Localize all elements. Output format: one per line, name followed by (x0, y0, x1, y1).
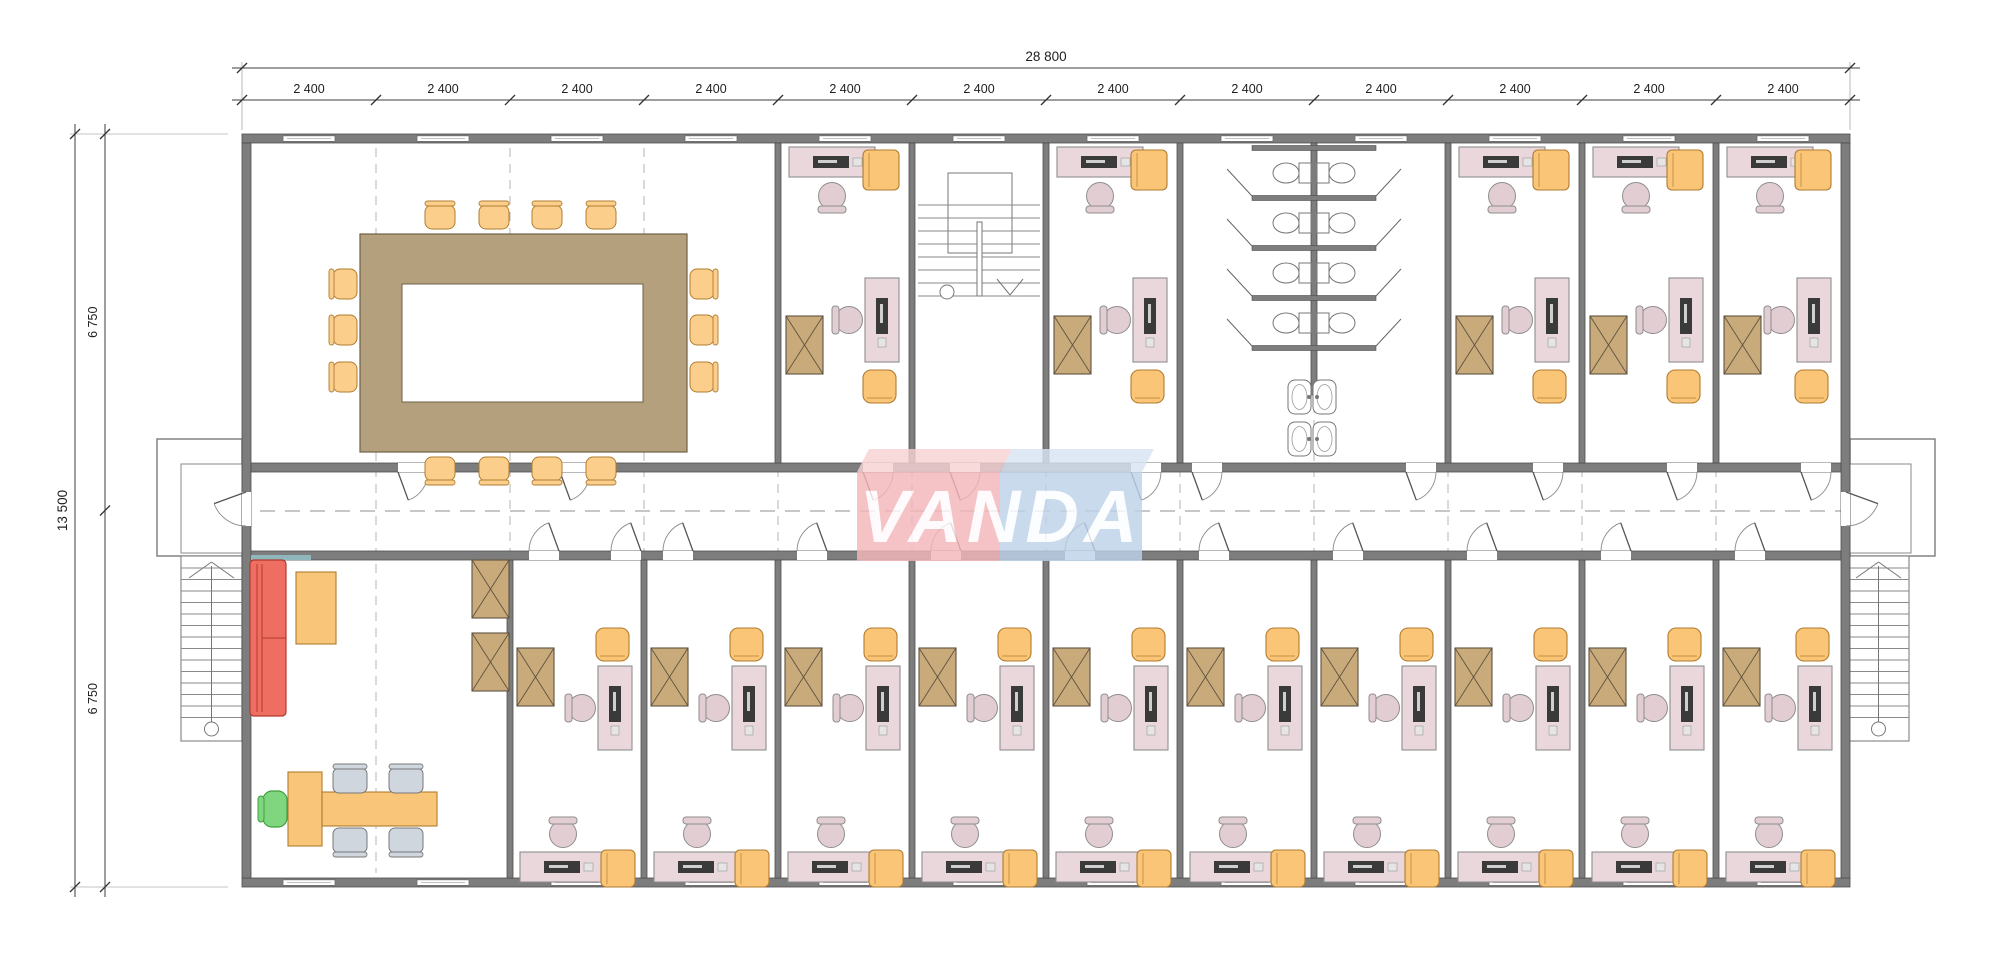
door-opening (1192, 463, 1222, 472)
cabinet-yellow (863, 150, 899, 190)
desk (1324, 852, 1410, 882)
desk (1268, 666, 1302, 750)
wardrobe-cabinet (1456, 316, 1493, 374)
task-chair (1755, 817, 1783, 848)
dimension-module: 2 400 (695, 82, 726, 96)
logo-text: VANDA (860, 475, 1143, 558)
door-opening (797, 551, 827, 560)
door-opening (1841, 492, 1850, 526)
desk (1726, 852, 1812, 882)
wardrobe-cabinet (1590, 316, 1627, 374)
door-opening (611, 551, 641, 560)
desk (788, 852, 874, 882)
meeting-chair (532, 457, 562, 485)
desk (866, 666, 900, 750)
dimension-module: 2 400 (1499, 82, 1530, 96)
left-vestibule-inner (181, 464, 242, 553)
logo-block-right-top (1000, 449, 1154, 472)
side-chair (1796, 628, 1829, 661)
stall-partition (1252, 296, 1376, 301)
meeting-chair (690, 315, 718, 345)
dimension-module: 2 400 (963, 82, 994, 96)
meeting-chair (479, 457, 509, 485)
cabinet-yellow (1673, 850, 1707, 887)
stall-partition (1252, 246, 1376, 251)
side-chair (1667, 370, 1700, 403)
task-chair (1503, 694, 1534, 722)
task-chair (817, 817, 845, 848)
door-opening (1735, 551, 1765, 560)
executive-desk (288, 772, 322, 846)
desk (1535, 278, 1569, 362)
partition-wall-bottom-row (1311, 560, 1317, 878)
dimension-module: 2 400 (561, 82, 592, 96)
wardrobe-cabinet (1187, 648, 1224, 706)
toilet-tank (1317, 163, 1329, 183)
meeting-chair (690, 269, 718, 299)
toilet-bowl (1273, 313, 1299, 333)
toilet-bowl (1329, 163, 1355, 183)
toilet-tank (1317, 263, 1329, 283)
desk (1536, 666, 1570, 750)
cabinet-yellow (1801, 850, 1835, 887)
side-chair (596, 628, 629, 661)
guest-chair (389, 828, 423, 857)
door-opening (1801, 463, 1831, 472)
dimension-total-height: 13 500 (55, 490, 70, 531)
door-opening (529, 551, 559, 560)
desk (1593, 147, 1679, 177)
cabinet-yellow (1533, 150, 1569, 190)
task-chair (1219, 817, 1247, 848)
desk (922, 852, 1008, 882)
wardrobe-cabinet (1053, 648, 1090, 706)
cabinet-yellow (1405, 850, 1439, 887)
task-chair (1353, 817, 1381, 848)
desk (1669, 278, 1703, 362)
task-chair (1487, 817, 1515, 848)
side-chair (864, 628, 897, 661)
side-chair (730, 628, 763, 661)
guest-chair (333, 828, 367, 857)
door-opening (1667, 463, 1697, 472)
task-chair (1235, 694, 1266, 722)
partition-wall-top-row (1713, 143, 1719, 463)
side-chair (998, 628, 1031, 661)
task-chair (1488, 183, 1516, 214)
desk (865, 278, 899, 362)
task-chair (1100, 306, 1131, 334)
dimension-module: 2 400 (1231, 82, 1262, 96)
guest-chair (333, 764, 367, 793)
right-external-stair (1848, 556, 1909, 741)
toilet-tank (1299, 213, 1311, 233)
door-opening (398, 463, 428, 472)
dimension-module: 2 400 (427, 82, 458, 96)
wardrobe-cabinet (651, 648, 688, 706)
meeting-chair (329, 269, 357, 299)
meeting-chair (586, 201, 616, 229)
task-chair (683, 817, 711, 848)
meeting-chair (329, 362, 357, 392)
meeting-chair (425, 457, 455, 485)
task-chair (1756, 183, 1784, 214)
partition-wall-bottom-row (1713, 560, 1719, 878)
task-chair (833, 694, 864, 722)
partition-wall-bottom-row (1043, 560, 1049, 878)
wardrobe-cabinet (1054, 316, 1091, 374)
task-chair (832, 306, 863, 334)
meeting-chair (586, 457, 616, 485)
partition-wall-top-row (1043, 143, 1049, 463)
side-chair (1533, 370, 1566, 403)
accent-wall-strip (251, 555, 311, 560)
partition-wall-bottom-row (1177, 560, 1183, 878)
right-vestibule-inner (1850, 464, 1911, 553)
dimension-half-height: 6 750 (86, 683, 100, 714)
door-opening (1601, 551, 1631, 560)
left-external-stair (181, 556, 242, 741)
side-chair (1400, 628, 1433, 661)
task-chair (967, 694, 998, 722)
cabinet-yellow (1271, 850, 1305, 887)
wardrobe-cabinet (785, 648, 822, 706)
door-opening (663, 551, 693, 560)
partition-wall-top-row (1177, 143, 1183, 463)
task-chair (565, 694, 596, 722)
toilet-tank (1299, 263, 1311, 283)
floor-plan-canvas: 28 8002 4002 4002 4002 4002 4002 4002 40… (0, 0, 2000, 980)
wardrobe-cabinet (919, 648, 956, 706)
task-chair (818, 183, 846, 214)
side-chair (1534, 628, 1567, 661)
vanda-logo: VANDA (857, 449, 1154, 561)
desk (654, 852, 740, 882)
task-chair (1621, 817, 1649, 848)
desk (1670, 666, 1704, 750)
desk (1402, 666, 1436, 750)
task-chair (1101, 694, 1132, 722)
door-opening (1333, 551, 1363, 560)
desk (1134, 666, 1168, 750)
door-opening (1406, 463, 1436, 472)
task-chair (1622, 183, 1650, 214)
door-opening (1199, 551, 1229, 560)
task-chair (1765, 694, 1796, 722)
desk (598, 666, 632, 750)
desk (1797, 278, 1831, 362)
desk (1056, 852, 1142, 882)
partition-wall-bottom-row (1445, 560, 1451, 878)
dimension-module: 2 400 (829, 82, 860, 96)
dimension-module: 2 400 (1365, 82, 1396, 96)
meeting-chair (532, 201, 562, 229)
cabinet-yellow (1667, 150, 1703, 190)
cabinet-yellow (601, 850, 635, 887)
side-chair (1795, 370, 1828, 403)
partition-wall-top-row (1445, 143, 1451, 463)
stall-partition (1252, 196, 1376, 201)
desk (1133, 278, 1167, 362)
door-opening (1533, 463, 1563, 472)
side-chair (1132, 628, 1165, 661)
task-chair (1637, 694, 1668, 722)
toilet-bowl (1273, 163, 1299, 183)
desk (1459, 147, 1545, 177)
desk (1190, 852, 1276, 882)
task-chair (1086, 183, 1114, 214)
wardrobe-cabinet (1455, 648, 1492, 706)
partition-wall-bottom-row (641, 560, 647, 878)
floor-plan-drawing: 28 8002 4002 4002 4002 4002 4002 4002 40… (0, 0, 2000, 980)
partition-wall-bottom-row (775, 560, 781, 878)
exterior-wall-top (242, 134, 1850, 143)
task-chair (1636, 306, 1667, 334)
task-chair (699, 694, 730, 722)
toilet-bowl (1329, 313, 1355, 333)
dimension-half-height: 6 750 (86, 307, 100, 338)
desk (732, 666, 766, 750)
task-chair (1085, 817, 1113, 848)
task-chair (951, 817, 979, 848)
cabinet-yellow (735, 850, 769, 887)
dimension-module: 2 400 (293, 82, 324, 96)
partition-wall-bottom-row (909, 560, 915, 878)
wardrobe-cabinet (472, 560, 509, 618)
toilet-tank (1317, 313, 1329, 333)
side-chair (1668, 628, 1701, 661)
cabinet-yellow (869, 850, 903, 887)
sofa (250, 560, 286, 716)
meeting-chair (690, 362, 718, 392)
wardrobe-cabinet (517, 648, 554, 706)
partition-wall-top-row (909, 143, 915, 463)
meeting-chair (329, 315, 357, 345)
partition-wall-bottom-row (1579, 560, 1585, 878)
cabinet-yellow (1795, 150, 1831, 190)
desk (1458, 852, 1544, 882)
cabinet-yellow (1137, 850, 1171, 887)
guest-chair (389, 764, 423, 793)
dimension-module: 2 400 (1633, 82, 1664, 96)
meeting-chair (425, 201, 455, 229)
partition-wall-top-row (1579, 143, 1585, 463)
wardrobe-cabinet (1723, 648, 1760, 706)
wardrobe-cabinet (786, 316, 823, 374)
toilet-center-wall (1311, 143, 1317, 395)
side-chair (1266, 628, 1299, 661)
task-chair (1764, 306, 1795, 334)
desk (1798, 666, 1832, 750)
stall-partition (1252, 146, 1376, 151)
task-chair (549, 817, 577, 848)
toilet-bowl (1273, 263, 1299, 283)
wardrobe-cabinet (472, 633, 509, 691)
wardrobe-cabinet (1589, 648, 1626, 706)
desk (1592, 852, 1678, 882)
toilet-bowl (1329, 213, 1355, 233)
door-opening (1467, 551, 1497, 560)
side-chair (863, 370, 896, 403)
task-chair (1369, 694, 1400, 722)
cabinet-yellow (1131, 150, 1167, 190)
desk (789, 147, 875, 177)
toilet-tank (1299, 313, 1311, 333)
coffee-table (296, 572, 336, 644)
dimension-module: 2 400 (1097, 82, 1128, 96)
toilet-tank (1317, 213, 1329, 233)
wardrobe-cabinet (1321, 648, 1358, 706)
stall-partition (1252, 346, 1376, 351)
desk (1000, 666, 1034, 750)
executive-chair (258, 791, 287, 827)
desk (520, 852, 606, 882)
dimension-total-width: 28 800 (1025, 49, 1066, 64)
meeting-extension-table (322, 792, 437, 826)
task-chair (1502, 306, 1533, 334)
dimension-module: 2 400 (1767, 82, 1798, 96)
toilet-bowl (1273, 213, 1299, 233)
toilet-bowl (1329, 263, 1355, 283)
meeting-chair (479, 201, 509, 229)
cabinet-yellow (1539, 850, 1573, 887)
desk (1057, 147, 1143, 177)
partition-wall-top-row (775, 143, 781, 463)
wardrobe-cabinet (1724, 316, 1761, 374)
cabinet-yellow (1003, 850, 1037, 887)
toilet-tank (1299, 163, 1311, 183)
door-opening (242, 492, 251, 526)
logo-block-left-top (857, 449, 1012, 472)
side-chair (1131, 370, 1164, 403)
meeting-room (329, 201, 718, 485)
